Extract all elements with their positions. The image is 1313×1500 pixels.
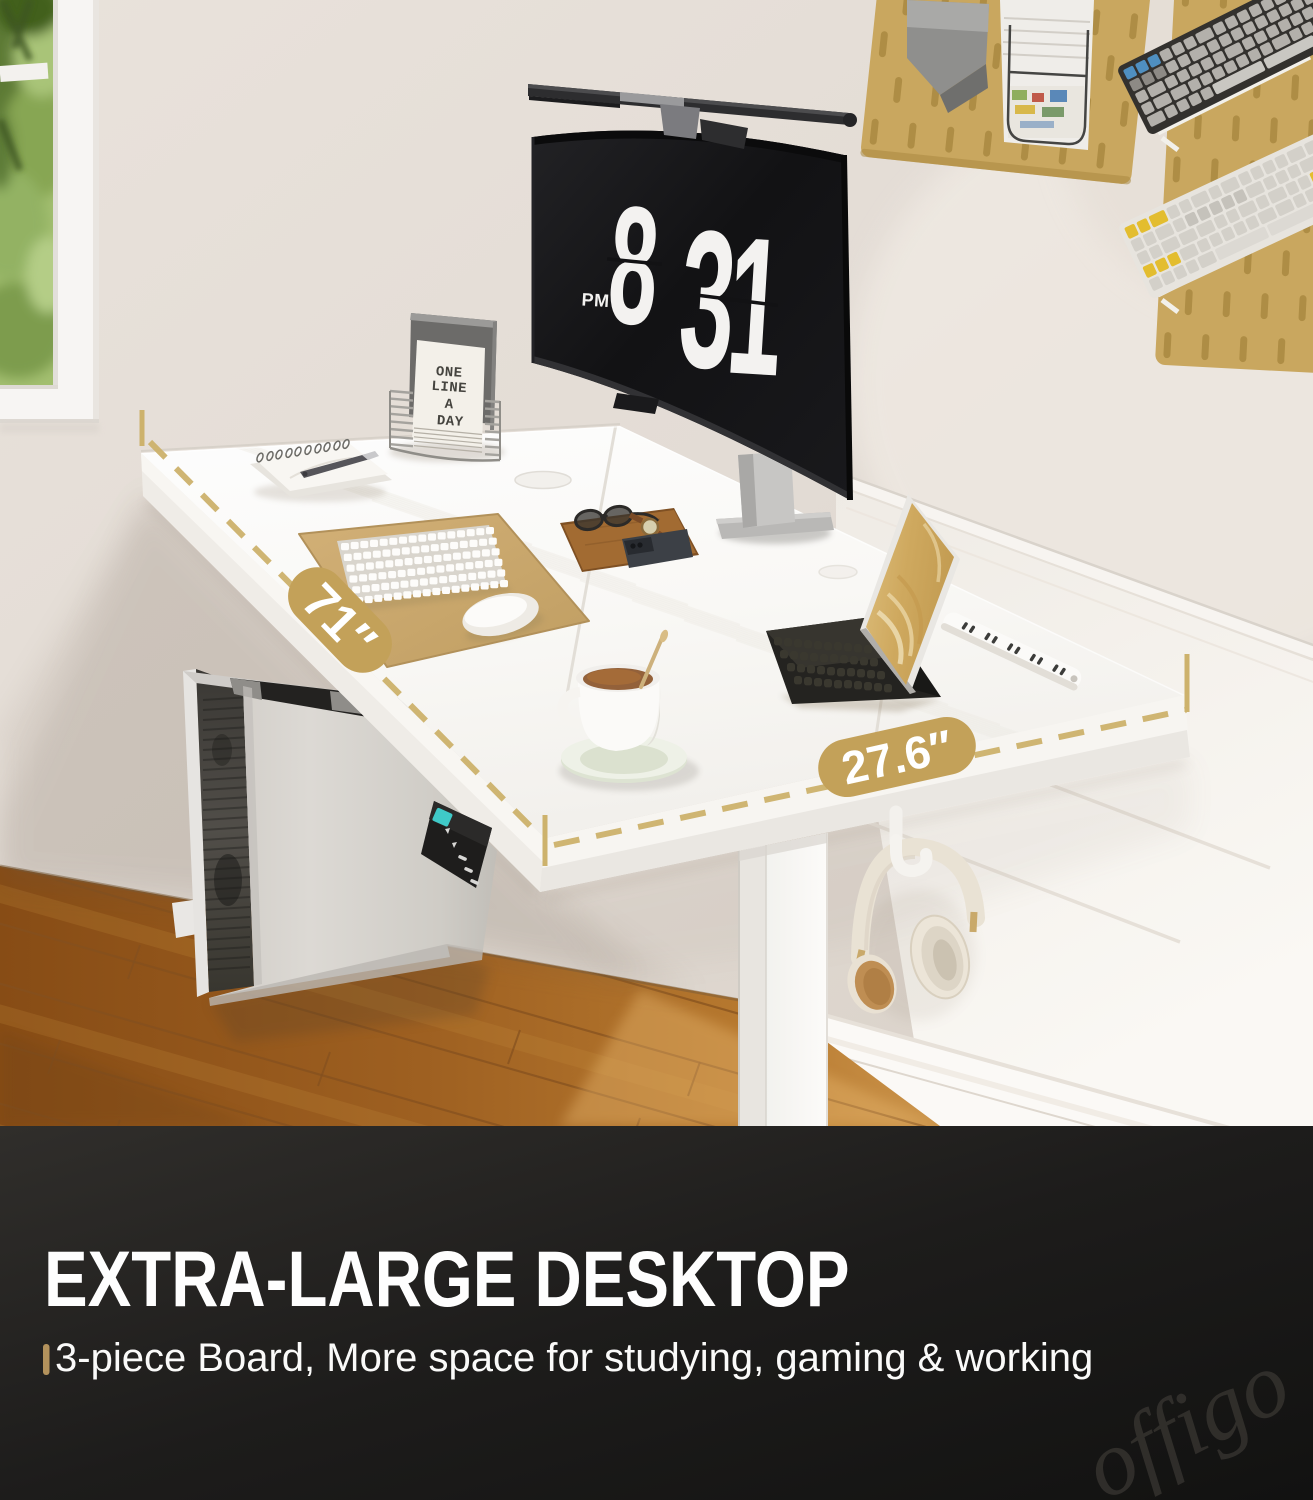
svg-text:3-piece Board, More space for: 3-piece Board, More space for studying, … bbox=[55, 1336, 1093, 1380]
svg-text:A: A bbox=[444, 397, 454, 414]
svg-text:LINE: LINE bbox=[431, 379, 468, 397]
svg-text:PM: PM bbox=[581, 289, 610, 311]
svg-text:DAY: DAY bbox=[436, 413, 464, 431]
svg-text:EXTRA-LARGE DESKTOP: EXTRA-LARGE DESKTOP bbox=[44, 1235, 850, 1323]
